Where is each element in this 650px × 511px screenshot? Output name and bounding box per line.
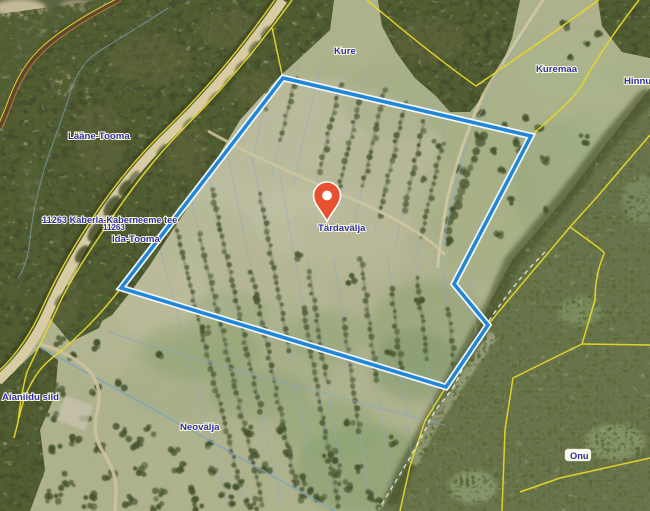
svg-text:11263: 11263 <box>103 223 125 232</box>
svg-text:Neovälja: Neovälja <box>180 422 220 433</box>
svg-text:Kure: Kure <box>334 46 356 57</box>
svg-text:Onu: Onu <box>570 451 589 461</box>
svg-text:Hinnu: Hinnu <box>624 76 650 87</box>
svg-text:Kuremaa: Kuremaa <box>536 64 578 75</box>
svg-text:Tärdavälja: Tärdavälja <box>318 223 366 234</box>
svg-text:Ida-Tooma: Ida-Tooma <box>112 234 160 245</box>
svg-text:Lääne-Tooma: Lääne-Tooma <box>68 131 130 142</box>
svg-text:Aianiidu sild: Aianiidu sild <box>2 392 59 403</box>
